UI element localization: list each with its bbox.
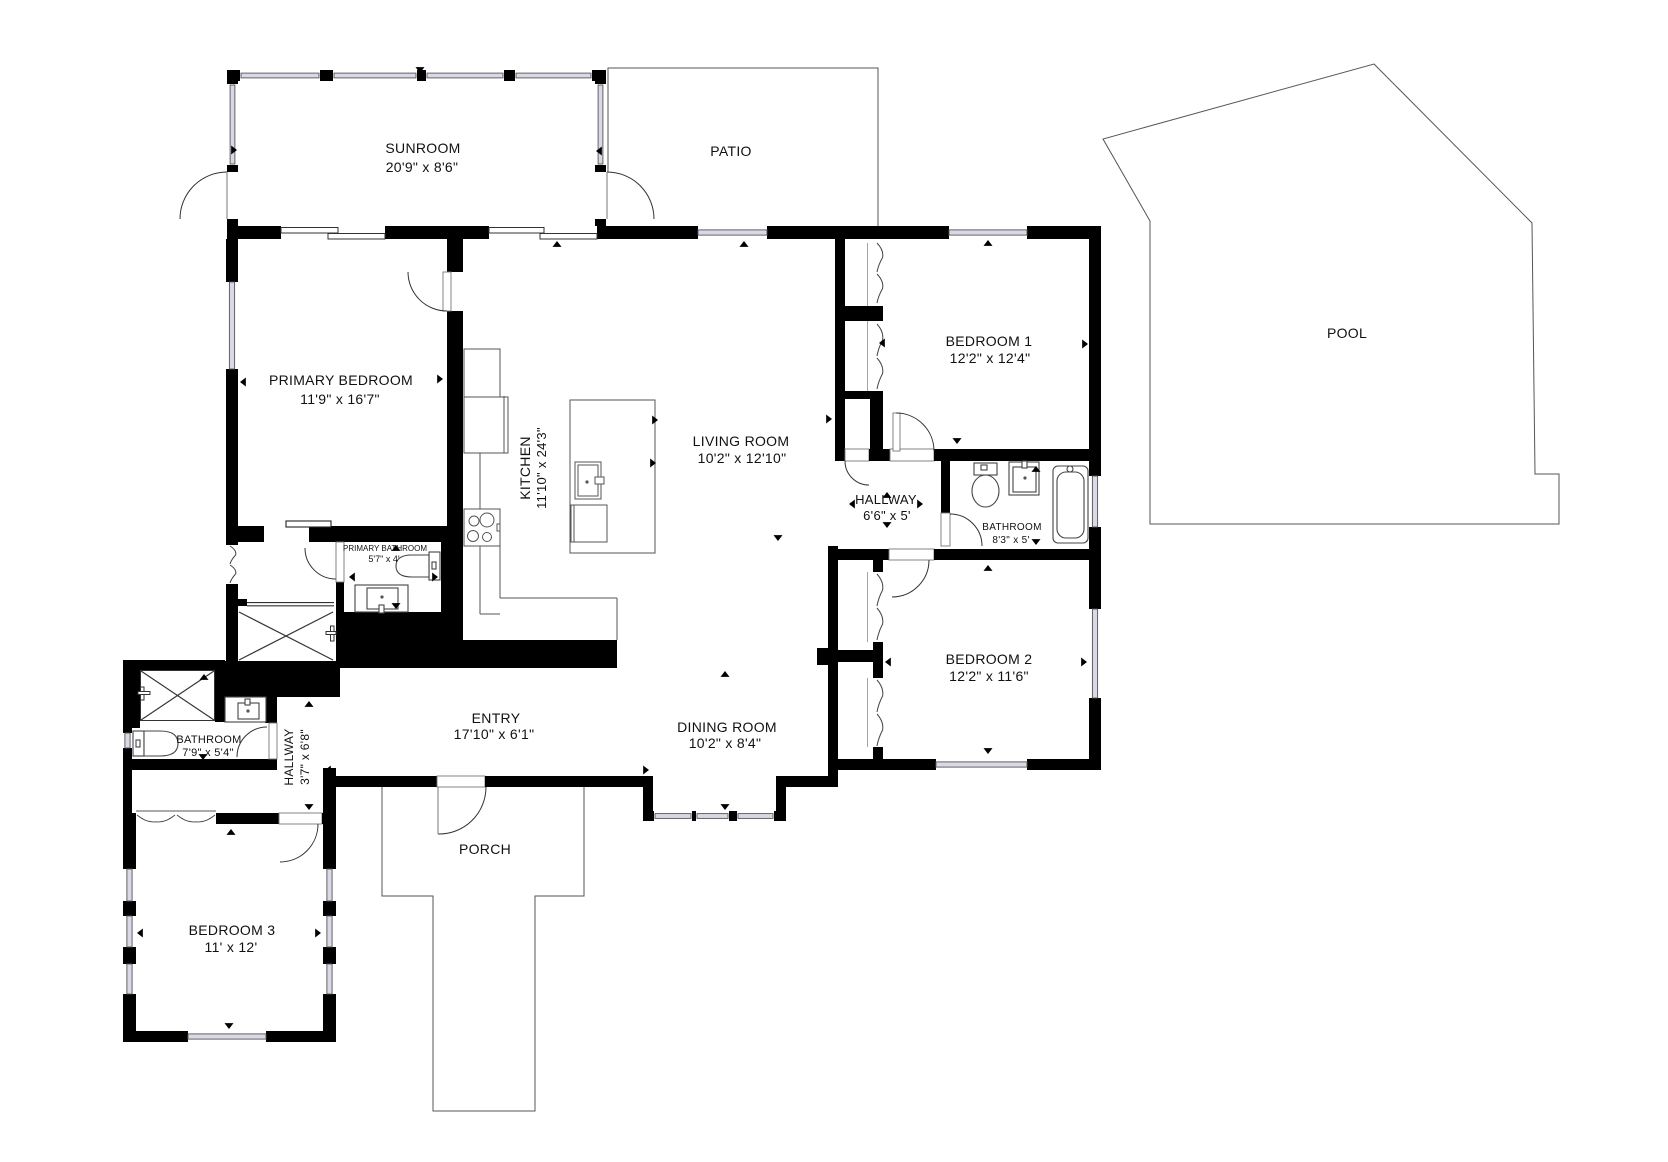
svg-text:5'7" x 4': 5'7" x 4'	[368, 554, 399, 564]
svg-text:BEDROOM 2: BEDROOM 2	[946, 651, 1033, 667]
svg-text:20'9" x 8'6": 20'9" x 8'6"	[386, 159, 459, 175]
svg-text:PORCH: PORCH	[459, 841, 511, 857]
svg-text:PATIO: PATIO	[710, 143, 751, 159]
svg-text:BEDROOM 1: BEDROOM 1	[946, 333, 1033, 349]
svg-text:POOL: POOL	[1327, 325, 1367, 341]
svg-text:PRIMARY BATHROOM: PRIMARY BATHROOM	[343, 544, 427, 553]
svg-text:10'2" x 8'4": 10'2" x 8'4"	[689, 735, 762, 751]
svg-text:SUNROOM: SUNROOM	[385, 140, 460, 156]
svg-text:3'7" x 6'8": 3'7" x 6'8"	[298, 729, 312, 785]
svg-text:BATHROOM: BATHROOM	[176, 734, 241, 746]
svg-text:11'10" x 24'3": 11'10" x 24'3"	[534, 427, 549, 509]
svg-text:DINING ROOM: DINING ROOM	[677, 719, 777, 735]
svg-text:LIVING ROOM: LIVING ROOM	[693, 433, 790, 449]
svg-text:PRIMARY BEDROOM: PRIMARY BEDROOM	[269, 372, 413, 388]
svg-text:11'9" x 16'7": 11'9" x 16'7"	[300, 391, 380, 407]
svg-text:6'6" x 5': 6'6" x 5'	[863, 508, 911, 523]
svg-text:17'10" x 6'1": 17'10" x 6'1"	[454, 726, 535, 742]
svg-text:11' x 12': 11' x 12'	[205, 939, 258, 955]
svg-text:8'3" x 5': 8'3" x 5'	[992, 535, 1029, 546]
svg-text:BATHROOM: BATHROOM	[982, 522, 1041, 533]
svg-text:12'2" x 11'6": 12'2" x 11'6"	[949, 668, 1029, 684]
svg-text:HALLWAY: HALLWAY	[282, 728, 296, 785]
svg-text:10'2" x 12'10": 10'2" x 12'10"	[698, 450, 787, 466]
svg-text:ENTRY: ENTRY	[472, 710, 521, 726]
svg-text:KITCHEN: KITCHEN	[517, 436, 533, 500]
svg-text:BEDROOM 3: BEDROOM 3	[189, 922, 276, 938]
svg-text:7'9" x 5'4": 7'9" x 5'4"	[182, 747, 233, 759]
svg-text:12'2" x 12'4": 12'2" x 12'4"	[950, 350, 1031, 366]
